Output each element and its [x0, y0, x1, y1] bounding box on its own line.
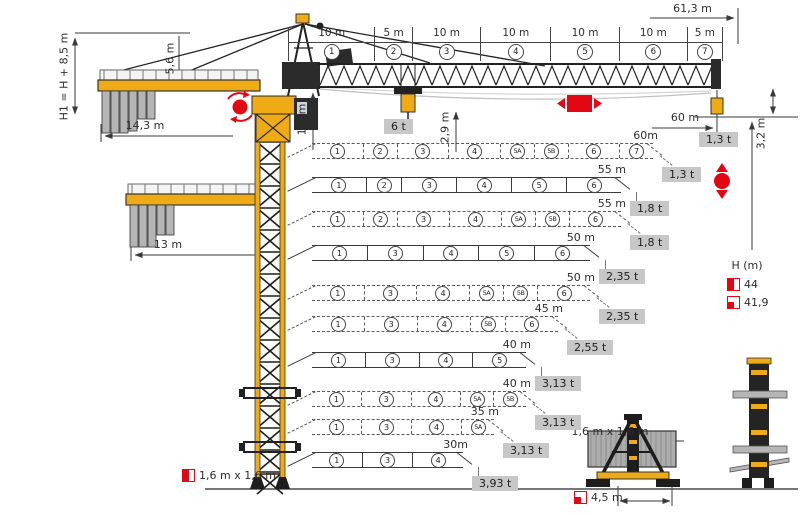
tower-mast — [239, 48, 353, 494]
trolley-and-hook — [394, 64, 422, 119]
hoist-icon — [714, 163, 730, 199]
travelling-base — [586, 414, 680, 487]
folded-tower — [730, 358, 789, 488]
jib-truss — [282, 59, 721, 89]
crane-load-diagram: 61,3 m H1 = H + 8,5 m 5,6 m 14,3 m 13 m … — [0, 0, 800, 515]
hoist-ropes — [320, 87, 711, 99]
trolley-travel-icon — [557, 95, 602, 112]
slewing-rotation-icon — [228, 91, 252, 123]
tip-hook — [711, 98, 723, 114]
counterjib-alternate — [126, 184, 258, 247]
crane-drawing — [0, 0, 800, 515]
